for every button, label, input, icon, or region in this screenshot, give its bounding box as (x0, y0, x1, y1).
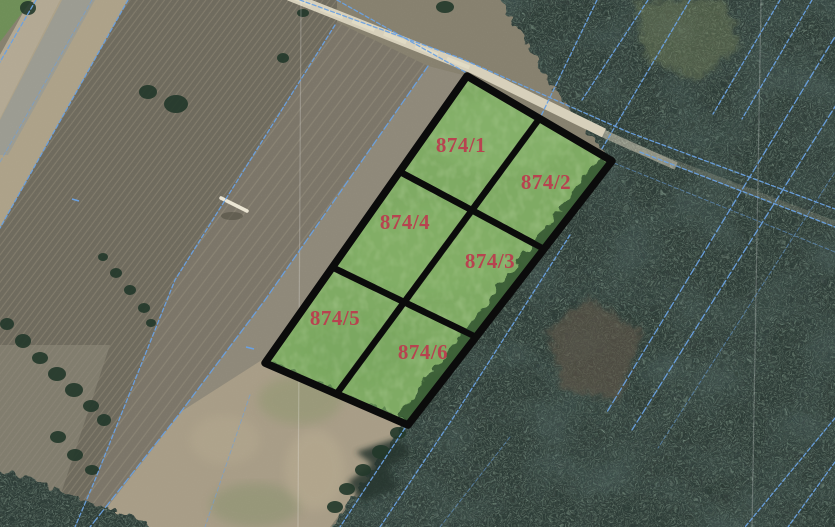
parcel-label-874-5: 874/5 (310, 306, 360, 330)
map-viewport[interactable]: 874/1 874/2 874/3 874/4 874/5 874/6 (0, 0, 835, 527)
parcel-label-874-1: 874/1 (436, 133, 486, 157)
parcel-label-874-3: 874/3 (465, 249, 515, 273)
parcel-label-874-4: 874/4 (380, 210, 430, 234)
parcel-label-874-6: 874/6 (398, 340, 448, 364)
parcel-label-874-2: 874/2 (521, 170, 571, 194)
map-canvas[interactable]: 874/1 874/2 874/3 874/4 874/5 874/6 (0, 0, 835, 527)
